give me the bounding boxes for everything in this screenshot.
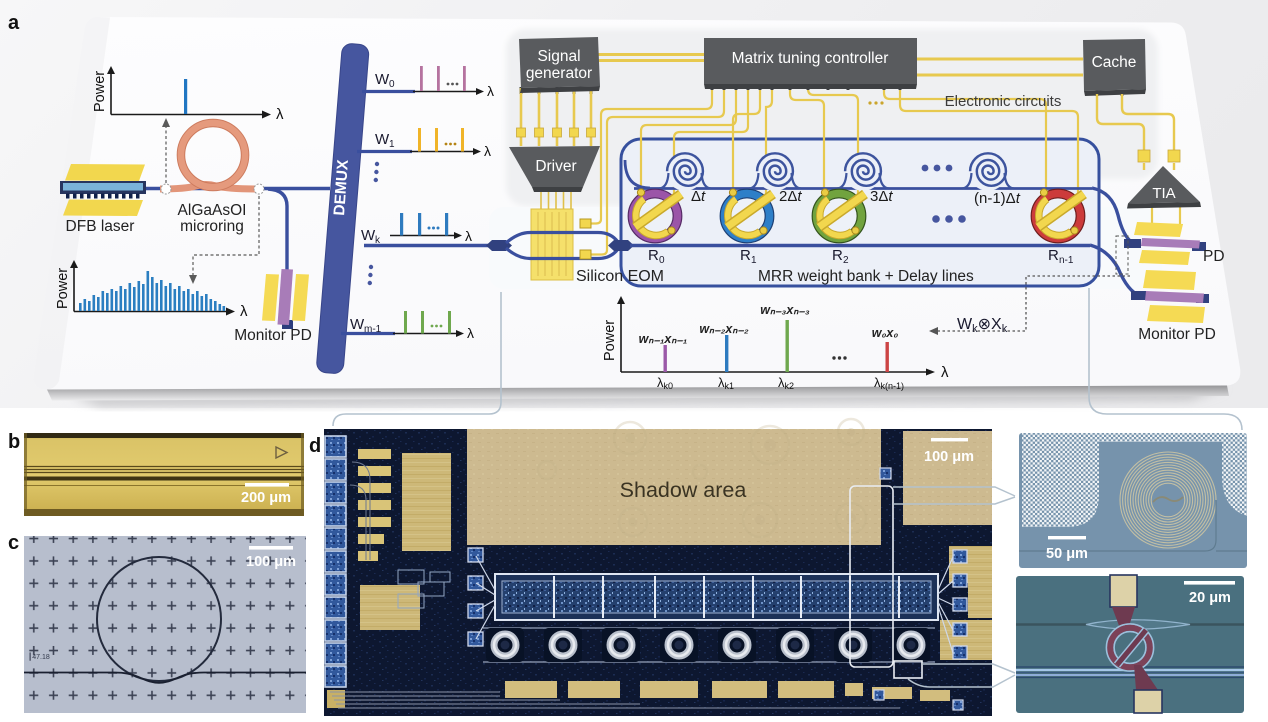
svg-text:0: 0 — [389, 79, 395, 90]
svg-text:R: R — [1048, 247, 1059, 264]
svg-text:b: b — [8, 431, 20, 453]
svg-text:AlGaAsOI: AlGaAsOI — [178, 202, 247, 219]
svg-text:wₙ₋₃xₙ₋₃: wₙ₋₃xₙ₋₃ — [760, 303, 810, 317]
svg-text:100 μm: 100 μm — [924, 449, 974, 465]
svg-text:Monitor PD: Monitor PD — [234, 327, 312, 344]
svg-text:DFB laser: DFB laser — [66, 218, 135, 235]
svg-text:R: R — [740, 247, 751, 264]
svg-text:Shadow area: Shadow area — [620, 478, 747, 502]
svg-text:Power: Power — [55, 268, 71, 309]
svg-text:λ: λ — [240, 303, 248, 320]
svg-text:W: W — [375, 131, 390, 148]
svg-text:Wk⊗Xk: Wk⊗Xk — [957, 316, 1008, 335]
svg-text:λ: λ — [487, 83, 494, 99]
svg-text:R: R — [648, 247, 659, 264]
svg-text:n-1: n-1 — [1059, 255, 1074, 266]
svg-text:microring: microring — [180, 218, 244, 235]
svg-text:Silicon EOM: Silicon EOM — [576, 268, 664, 285]
svg-text:Electronic circuits: Electronic circuits — [945, 93, 1062, 110]
svg-text:Power: Power — [602, 320, 618, 361]
svg-text:a: a — [8, 12, 20, 34]
svg-text:20 μm: 20 μm — [1189, 590, 1231, 606]
svg-text:W: W — [361, 227, 376, 244]
svg-text:MRR weight bank + Delay lines: MRR weight bank + Delay lines — [758, 268, 974, 285]
svg-text:generator: generator — [526, 65, 592, 82]
svg-text:c: c — [8, 532, 19, 554]
svg-text:Power: Power — [92, 71, 108, 112]
svg-text:50 μm: 50 μm — [1046, 546, 1088, 562]
svg-text:w₀x₀: w₀x₀ — [872, 326, 899, 340]
svg-text:PD: PD — [1203, 248, 1225, 265]
svg-text:1: 1 — [751, 255, 757, 266]
svg-text:Δt: Δt — [691, 188, 706, 205]
svg-text:0: 0 — [659, 255, 665, 266]
svg-text:Cache: Cache — [1092, 54, 1137, 71]
svg-text:100 μm: 100 μm — [246, 554, 296, 570]
svg-text:200 μm: 200 μm — [241, 490, 291, 506]
svg-text:Monitor PD: Monitor PD — [1138, 326, 1216, 343]
svg-text:W: W — [375, 71, 390, 88]
svg-text:R: R — [832, 247, 843, 264]
svg-text:λ: λ — [941, 364, 949, 381]
svg-text:2: 2 — [843, 255, 849, 266]
svg-text:λ: λ — [484, 143, 491, 159]
svg-text:2Δt: 2Δt — [779, 188, 802, 205]
svg-text:Signal: Signal — [537, 48, 580, 65]
svg-text:TIA: TIA — [1152, 185, 1175, 202]
svg-text:λ: λ — [465, 228, 472, 244]
svg-text:W: W — [350, 316, 365, 333]
svg-text:d: d — [309, 435, 321, 457]
svg-text:1: 1 — [389, 139, 395, 150]
svg-text:λ: λ — [467, 325, 474, 341]
svg-text:3Δt: 3Δt — [870, 188, 893, 205]
svg-text:┃47.18: ┃47.18 — [28, 652, 50, 661]
svg-text:(n-1)Δt: (n-1)Δt — [974, 190, 1021, 207]
svg-text:λ: λ — [276, 106, 284, 123]
svg-text:Driver: Driver — [535, 158, 576, 175]
svg-text:wₙ₋₁xₙ₋₁: wₙ₋₁xₙ₋₁ — [639, 332, 688, 346]
svg-text:Matrix tuning controller: Matrix tuning controller — [732, 50, 889, 67]
svg-text:m-1: m-1 — [364, 324, 382, 335]
svg-text:wₙ₋₂xₙ₋₂: wₙ₋₂xₙ₋₂ — [699, 322, 749, 336]
